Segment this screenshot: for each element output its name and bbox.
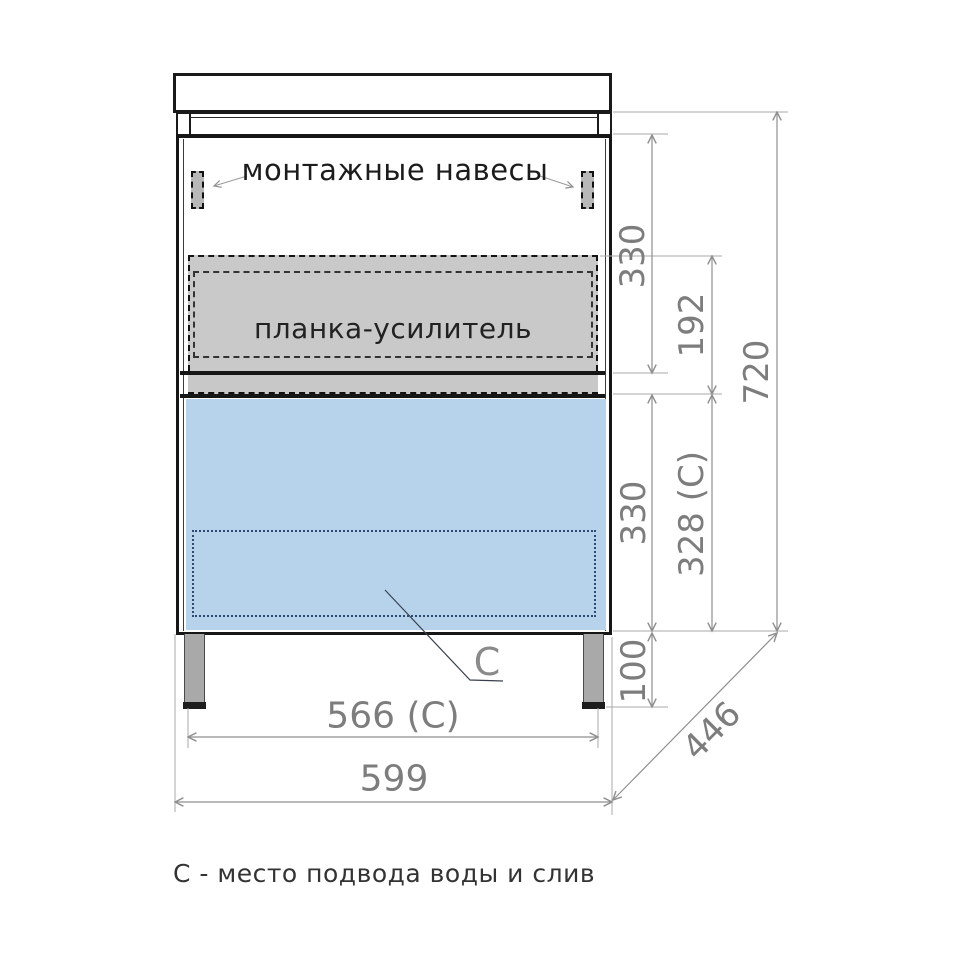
dim-depth: 446 — [675, 694, 749, 768]
leg-left — [184, 634, 205, 703]
side-panel-line-left — [183, 139, 184, 631]
dim-total-height: 720 — [737, 340, 777, 405]
dim-connection-zone-height: 328 (С) — [672, 451, 712, 577]
legend-caption: С - место подвода воды и слив — [173, 859, 595, 888]
apron-band — [176, 112, 612, 136]
dim-upper-section-height: 330 — [613, 224, 653, 289]
dim-connection-zone-width: 566 (С) — [326, 696, 459, 737]
connection-marker-label: С — [474, 640, 501, 684]
lower-box-top-line — [180, 394, 605, 398]
dim-total-width: 599 — [360, 759, 429, 800]
apron-divider-left — [189, 112, 191, 136]
leg-cap-left — [183, 702, 206, 709]
dim-lower-section-height: 330 — [614, 481, 654, 546]
apron-divider-right — [597, 112, 599, 136]
middle-rail — [188, 375, 598, 394]
leg-right — [583, 634, 604, 703]
dim-reinforcement-zone-height: 192 — [672, 293, 712, 358]
leg-cap-right — [582, 702, 605, 709]
reinforcement-bar-label: планка-усилитель — [188, 312, 598, 345]
mounting-hangers-label: монтажные навесы — [200, 153, 590, 187]
countertop — [173, 73, 612, 113]
vanity-cabinet-technical-drawing: монтажные навесы планка-усилитель С С - … — [0, 0, 964, 964]
water-connection-zone — [192, 530, 596, 617]
dim-leg-height: 100 — [614, 639, 654, 704]
apron-rail-line — [190, 117, 598, 118]
